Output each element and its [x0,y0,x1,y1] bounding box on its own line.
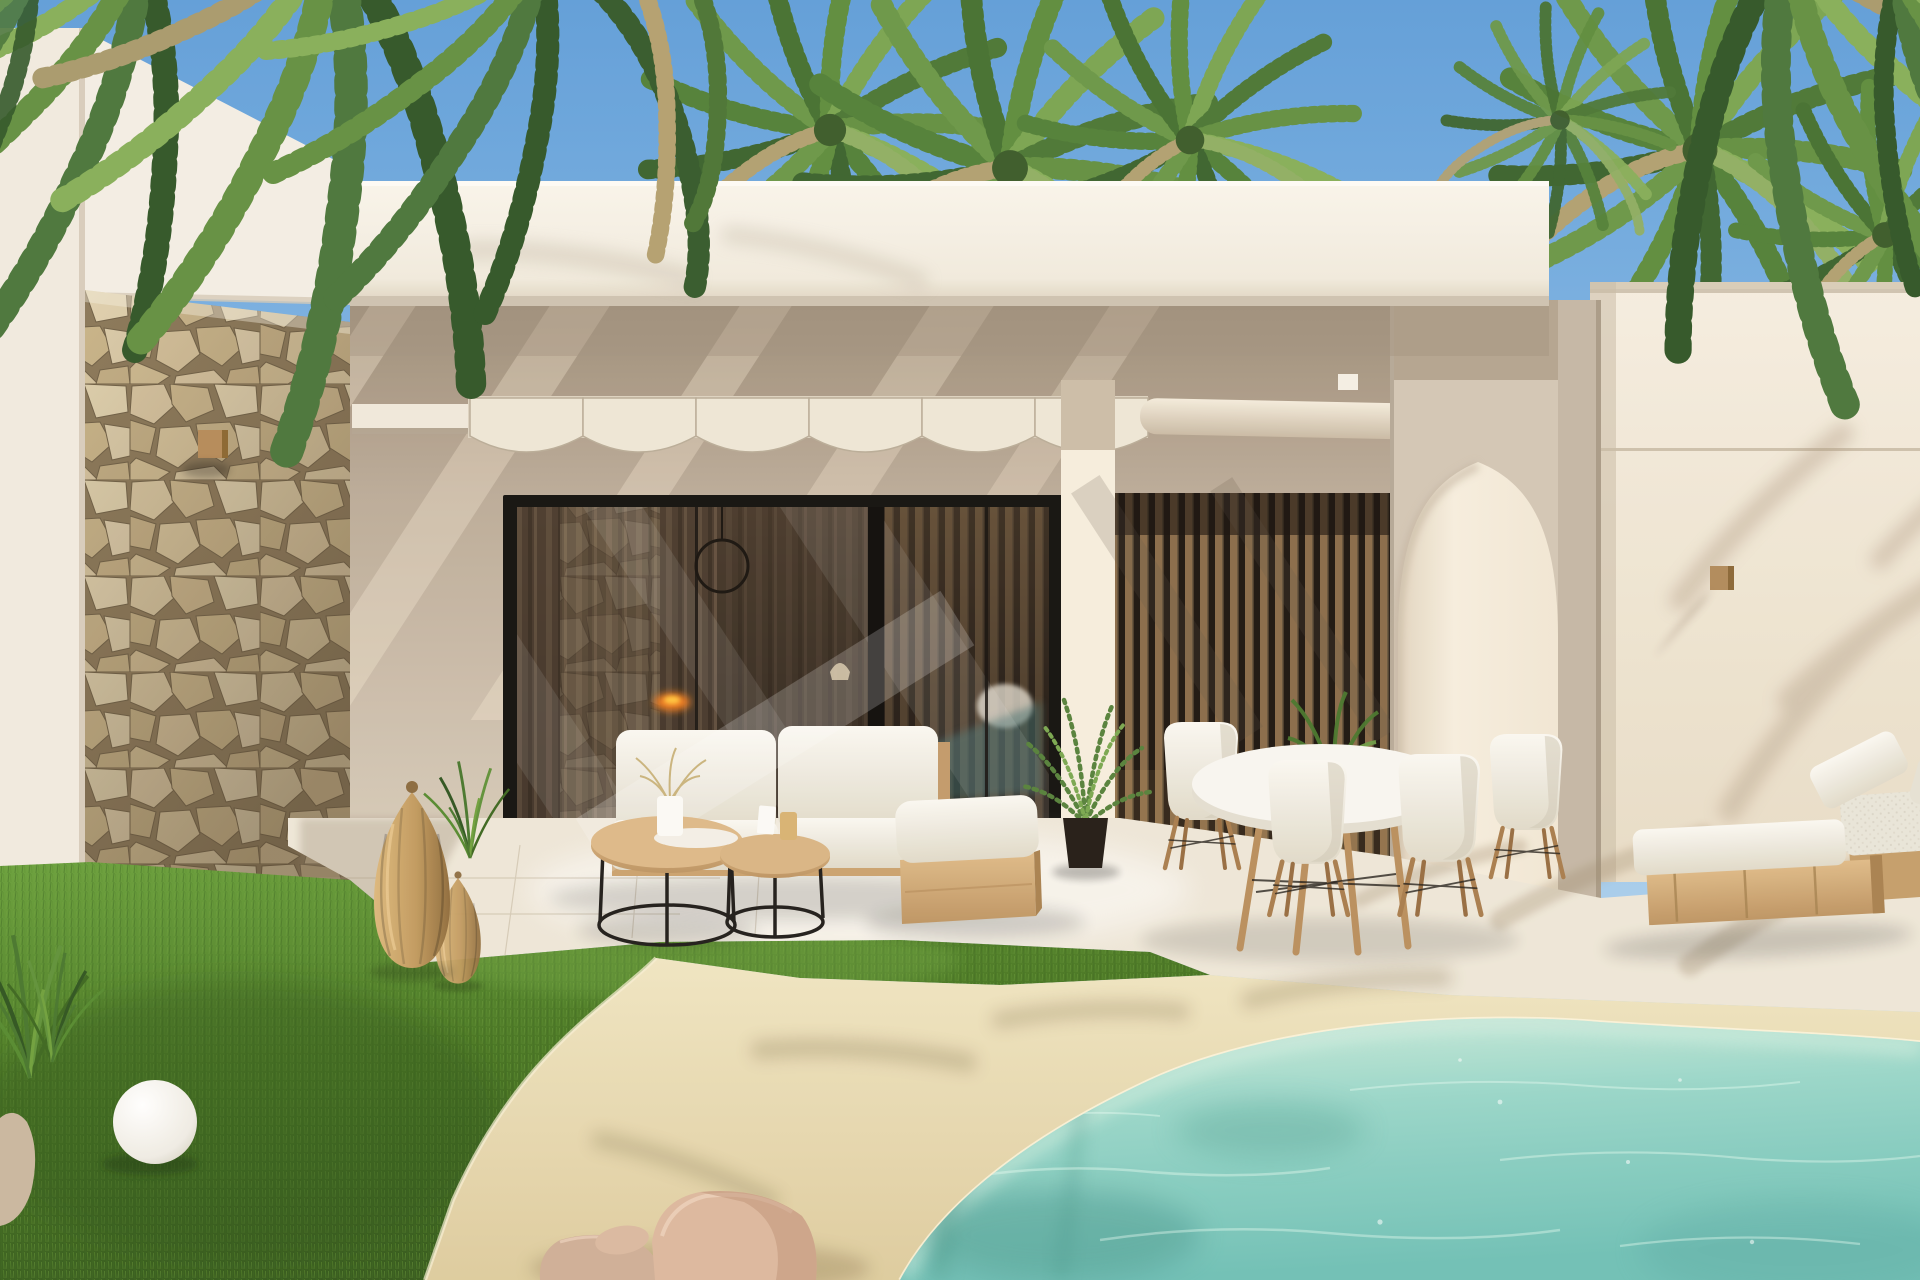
villa-exterior-scene [0,0,1920,1280]
warm-light-tint [0,0,1920,1280]
villa-render [0,0,1920,1280]
